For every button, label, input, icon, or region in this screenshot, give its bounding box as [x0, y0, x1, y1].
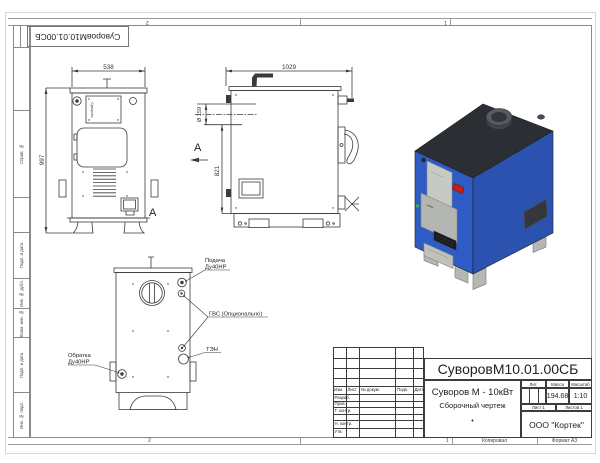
titleblock-doc-number: СуворовМ10.01.00СБ — [424, 358, 592, 380]
side-rivets — [235, 94, 333, 208]
front-legs — [73, 222, 144, 233]
dim-538: 538 — [72, 64, 145, 87]
front-brand-text: Суворовъ — [90, 102, 94, 117]
svg-text:538: 538 — [103, 64, 114, 71]
rear-view: Подача Ду40НР ГВС (Опционально) ТЭН Обра… — [68, 257, 268, 410]
front-body — [72, 93, 145, 218]
front-gauge-icon — [73, 97, 81, 105]
svg-text:Ø 159: Ø 159 — [197, 107, 203, 122]
svg-text:1029: 1029 — [282, 64, 297, 71]
sheet-cell: Лист 1 — [521, 404, 556, 411]
row-nkontr: Н. контр. — [335, 422, 353, 426]
lit-value-cell — [521, 388, 546, 404]
front-ash-box — [121, 198, 138, 215]
scale-value: 1:10 — [569, 388, 592, 404]
heater-port — [179, 354, 189, 364]
rear-leader-lines — [68, 270, 268, 373]
side-handle — [338, 127, 358, 164]
side-chimney-elbow — [252, 74, 273, 87]
dim-flue-159: Ø 159 — [195, 104, 258, 125]
front-view: Суворовъ — [39, 64, 158, 233]
front-thermowell — [130, 98, 137, 105]
supply-label: Подача — [205, 258, 226, 264]
dim-997: 997 — [39, 88, 72, 233]
gauge-3d — [421, 158, 425, 162]
side-base — [234, 214, 340, 228]
heater-label: ТЭН — [206, 347, 218, 353]
front-main-door — [77, 128, 127, 167]
center-dot: • — [471, 418, 473, 425]
rear-flue-outlet — [140, 281, 165, 306]
rear-ports — [118, 278, 189, 378]
rear-top-plate — [114, 268, 192, 273]
col-izm: Изм. — [334, 388, 343, 392]
side-view: 1029 Ø 159 821 А — [190, 64, 359, 228]
rear-chimney-line — [148, 257, 154, 268]
return-label-2: Ду40НР — [68, 360, 90, 366]
drawing-sheet: 2 1 2 1 Копировал Формат А3 Справ. № Под… — [0, 0, 600, 463]
front-vent-grille — [93, 169, 116, 196]
return-label: Обратка — [68, 353, 91, 359]
col-doc: № докум. — [361, 388, 380, 392]
row-prov: Пров. — [335, 402, 346, 406]
col-list: Лист — [348, 388, 357, 392]
front-chimney — [103, 79, 111, 88]
svg-text:997: 997 — [39, 154, 46, 165]
view-arrow: А — [190, 142, 208, 162]
render-3d — [415, 104, 553, 290]
sheets-cell: Листов 1 — [556, 404, 592, 411]
masshtab-header: Масштаб — [569, 380, 592, 388]
lit-header: Лит. — [521, 380, 546, 388]
rear-legs — [119, 393, 187, 410]
side-top-plate — [229, 87, 341, 91]
svg-text:821: 821 — [214, 165, 221, 176]
side-drain-valve — [338, 196, 359, 211]
titleblock-name-cell: Суворов М - 10кВт Сборочный чертеж • — [424, 380, 521, 438]
rear-body — [116, 273, 190, 393]
product-name: Суворов М - 10кВт — [432, 387, 514, 398]
rear-rivets — [132, 283, 168, 377]
dim-1029: 1029 — [226, 64, 352, 98]
massa-value: 194.68 — [546, 388, 569, 404]
green-indicator-3d — [416, 204, 419, 207]
dhw-label: ГВС (Опционально) — [209, 312, 262, 318]
supply-label-2: Ду40НР — [205, 265, 227, 271]
front-view-letter: А — [149, 207, 157, 219]
front-door-hinges — [74, 134, 77, 160]
front-top-plate — [70, 88, 147, 93]
front-base-plate — [70, 218, 147, 222]
col-data: Дата — [415, 388, 425, 392]
company-cell: ООО "Кортек" — [521, 411, 592, 438]
side-rear-stubs — [226, 95, 231, 197]
row-utv: Утв. — [335, 430, 343, 434]
rear-labels: Подача Ду40НР ГВС (Опционально) ТЭН Обра… — [68, 258, 262, 366]
side-window — [239, 179, 263, 198]
col-podp: Подп. — [397, 388, 408, 392]
row-razrab: Разраб. — [335, 396, 350, 400]
dim-821: 821 — [214, 125, 232, 214]
doc-type: Сборочный чертеж — [439, 401, 505, 410]
row-tkontr: Т. контр. — [335, 409, 352, 413]
massa-header: Масса — [546, 380, 569, 388]
side-view-letter: А — [194, 142, 202, 154]
